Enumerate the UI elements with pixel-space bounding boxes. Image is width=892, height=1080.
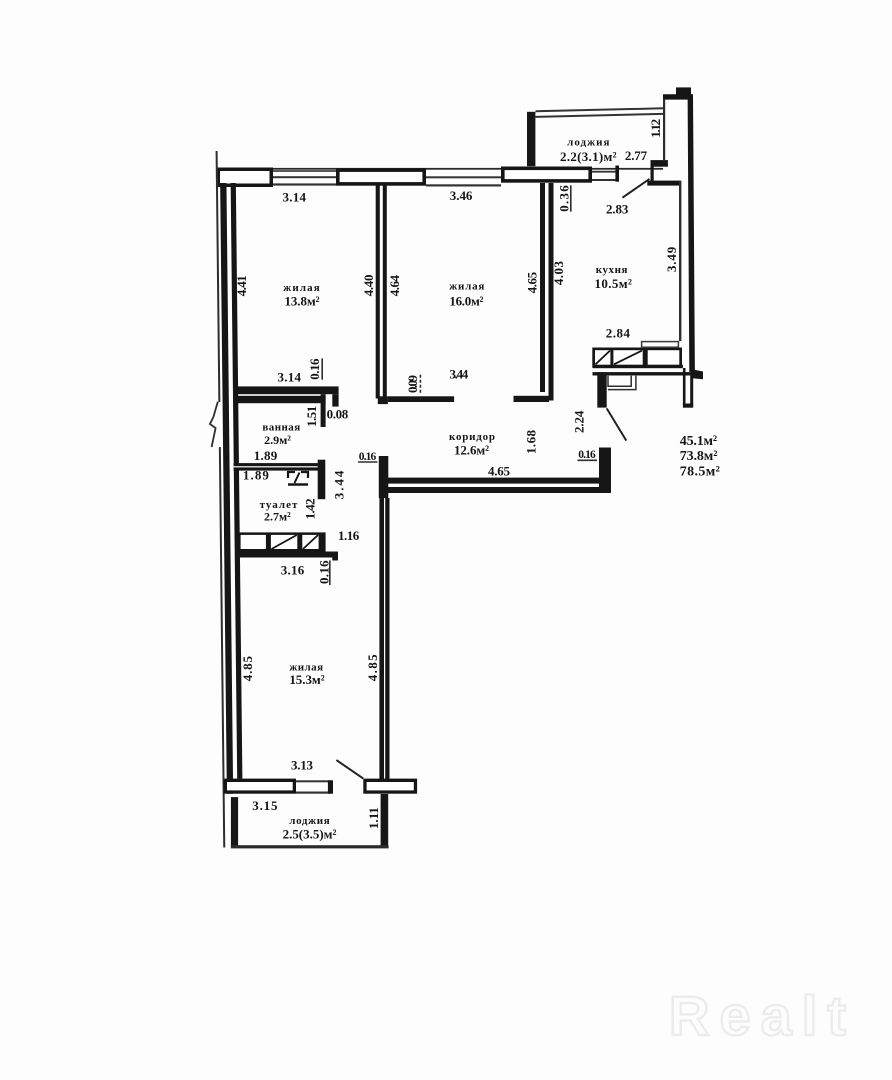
svg-text:4.03: 4.03	[551, 261, 566, 286]
svg-text:2.84: 2.84	[606, 326, 631, 341]
svg-text:0.36: 0.36	[557, 185, 572, 212]
svg-text:3.13: 3.13	[291, 758, 313, 773]
svg-text:3.16: 3.16	[281, 563, 305, 578]
svg-text:4.40: 4.40	[361, 275, 376, 297]
svg-text:1.89: 1.89	[243, 468, 270, 483]
svg-text:1.11: 1.11	[366, 807, 381, 829]
svg-text:13.8м²: 13.8м²	[285, 294, 320, 309]
svg-text:4.85: 4.85	[240, 655, 255, 681]
svg-text:2.9м²: 2.9м²	[264, 433, 291, 447]
svg-text:кухня: кухня	[596, 264, 628, 276]
svg-text:2.24: 2.24	[571, 410, 586, 433]
svg-text:4.65: 4.65	[524, 271, 539, 293]
svg-text:10.5м²: 10.5м²	[595, 276, 632, 291]
svg-text:жилая: жилая	[283, 282, 320, 294]
svg-text:3.46: 3.46	[450, 188, 473, 203]
svg-text:2.7м²: 2.7м²	[264, 510, 291, 524]
svg-text:12.6м²: 12.6м²	[454, 443, 489, 458]
svg-text:1.16: 1.16	[338, 528, 360, 543]
svg-text:1.12: 1.12	[648, 119, 663, 138]
svg-text:45.1м²: 45.1м²	[680, 434, 717, 449]
svg-text:2.77: 2.77	[625, 148, 648, 163]
svg-text:1.51: 1.51	[304, 406, 319, 427]
svg-text:0.16: 0.16	[307, 358, 322, 380]
svg-text:4.65: 4.65	[488, 464, 511, 479]
svg-text:0.09: 0.09	[405, 375, 420, 393]
svg-text:жилая: жилая	[449, 281, 484, 293]
svg-text:лоджия: лоджия	[289, 815, 329, 827]
svg-text:4.85: 4.85	[365, 654, 380, 681]
svg-text:1.89: 1.89	[254, 448, 278, 463]
svg-text:0.08: 0.08	[327, 406, 349, 421]
svg-text:0.16: 0.16	[578, 449, 596, 461]
svg-text:3.14: 3.14	[283, 189, 307, 204]
svg-text:3.49: 3.49	[664, 246, 679, 272]
svg-text:1.42: 1.42	[302, 498, 317, 519]
svg-text:15.3м²: 15.3м²	[289, 672, 324, 687]
svg-text:ванная: ванная	[262, 421, 300, 433]
svg-text:3.44: 3.44	[332, 470, 347, 499]
svg-text:2.83: 2.83	[606, 202, 629, 217]
svg-text:4.41: 4.41	[234, 275, 249, 296]
svg-text:78.5м²: 78.5м²	[680, 465, 720, 480]
svg-text:2.2(3.1)м²: 2.2(3.1)м²	[560, 149, 617, 164]
svg-text:3.14: 3.14	[277, 369, 301, 384]
svg-text:4.64: 4.64	[387, 275, 402, 297]
svg-text:2.5(3.5)м²: 2.5(3.5)м²	[283, 827, 337, 842]
svg-text:16.0м²: 16.0м²	[449, 293, 483, 308]
svg-text:1.68: 1.68	[524, 430, 539, 455]
svg-text:73.8м²: 73.8м²	[680, 449, 718, 464]
svg-text:коридор: коридор	[449, 431, 495, 443]
svg-text:лоджия: лоджия	[567, 137, 609, 149]
svg-text:Realt: Realt	[669, 984, 856, 1047]
svg-text:3.15: 3.15	[252, 798, 278, 813]
svg-text:3.44: 3.44	[450, 367, 469, 382]
